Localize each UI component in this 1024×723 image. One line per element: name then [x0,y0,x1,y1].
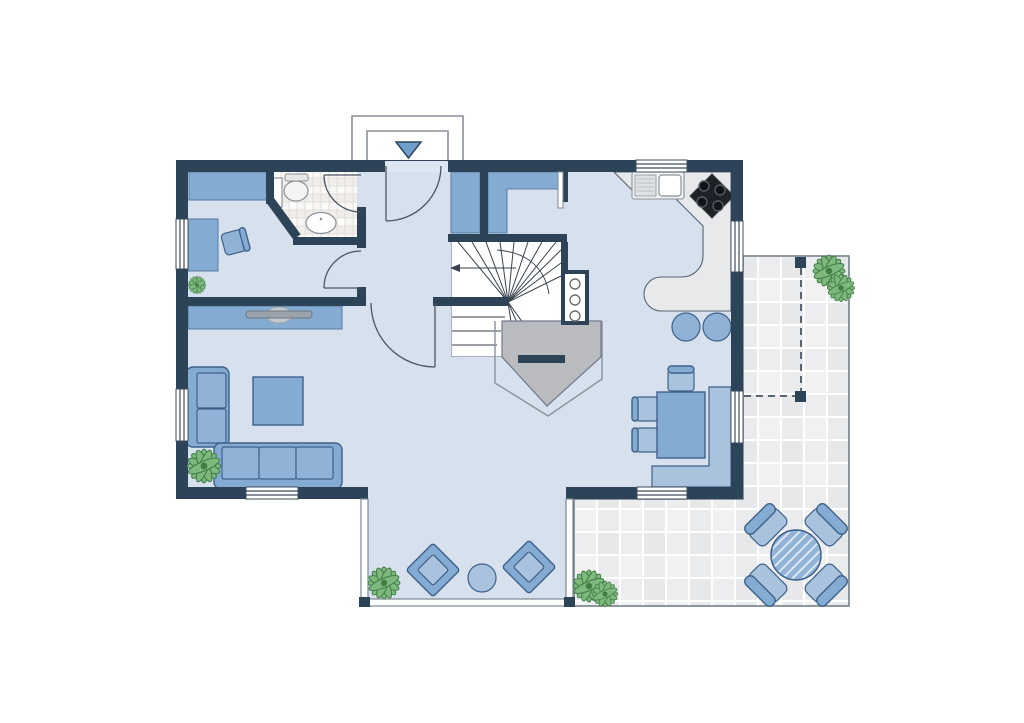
front-door-threshold [385,161,448,172]
wall-left [176,160,188,499]
window-living-left [176,389,188,441]
wall-stair-top [448,234,567,242]
pergola-post [795,391,806,402]
glass-wall-left [361,499,368,602]
coffee-table [253,377,303,425]
plant-office [188,276,206,294]
window-kitchen-right [731,221,743,272]
dining-chair [668,366,694,391]
kitchen-sink [632,172,684,199]
office-sideboard [189,172,267,200]
plant-terrace-bottom [592,581,618,607]
dining-chair [632,428,658,452]
chimney-flue [561,270,589,325]
plant-terrace-top [827,274,855,302]
glass-wall-bottom [361,599,573,606]
plant-conservatory [367,566,400,599]
three-seat-sofa [214,443,342,489]
dining-table [657,392,705,458]
window-dining-bottom [637,487,687,499]
glass-corner-post [564,597,575,607]
window-office-left [176,219,188,269]
washbasin [306,213,336,234]
pergola-post [795,257,806,268]
two-seat-sofa [186,367,229,447]
plant-living [187,449,222,484]
wall-office-bottom [184,297,366,306]
window-dining-right [731,391,743,443]
office-desk [188,219,218,271]
entrance-porch [352,114,463,160]
wall-stair-center [433,297,508,306]
toilet [284,174,308,201]
window-living-bottom [246,487,298,499]
wall-stair-bottom [518,355,565,363]
wall-kitchen-stub [563,172,568,202]
hall-wardrobe [451,172,480,233]
glass-corner-post [359,597,370,607]
wall-bathroom-bottom [293,237,366,245]
floor-plan-canvas [0,0,1024,723]
side-table [468,564,496,592]
wall-stair-right [561,242,568,272]
wall-closet [480,172,488,238]
window-kitchen-top [636,160,687,172]
bar-stool [672,313,700,341]
glass-wall-right [566,499,573,602]
bar-stool [703,313,731,341]
wall-office-right-a [357,207,366,248]
floor-plan-page [0,0,1024,723]
wall-right [731,160,743,499]
dining-chair [632,397,658,421]
kitchen-door-leaf [558,172,563,208]
